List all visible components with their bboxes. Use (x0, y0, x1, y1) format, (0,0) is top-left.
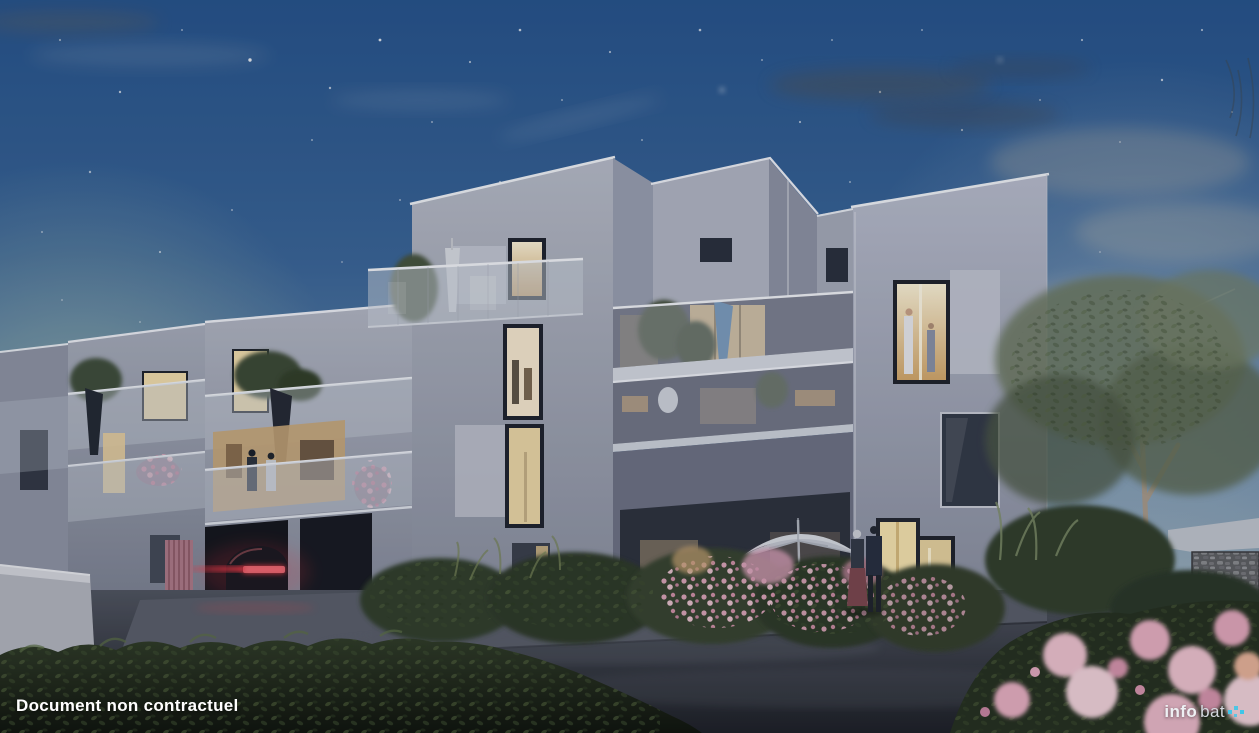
logo-text-info: info (1164, 702, 1197, 722)
vignette (0, 0, 1259, 733)
rendering-canvas: Document non contractuel infobat (0, 0, 1259, 733)
logo-text-bat: bat (1200, 702, 1225, 722)
infobat-logo: infobat (1164, 702, 1245, 722)
logo-cyan-pixel-mark-icon (1228, 705, 1245, 719)
watermark: Document non contractuel (16, 696, 239, 716)
watermark-text: Document non contractuel (16, 696, 239, 715)
scene-svg (0, 0, 1259, 733)
